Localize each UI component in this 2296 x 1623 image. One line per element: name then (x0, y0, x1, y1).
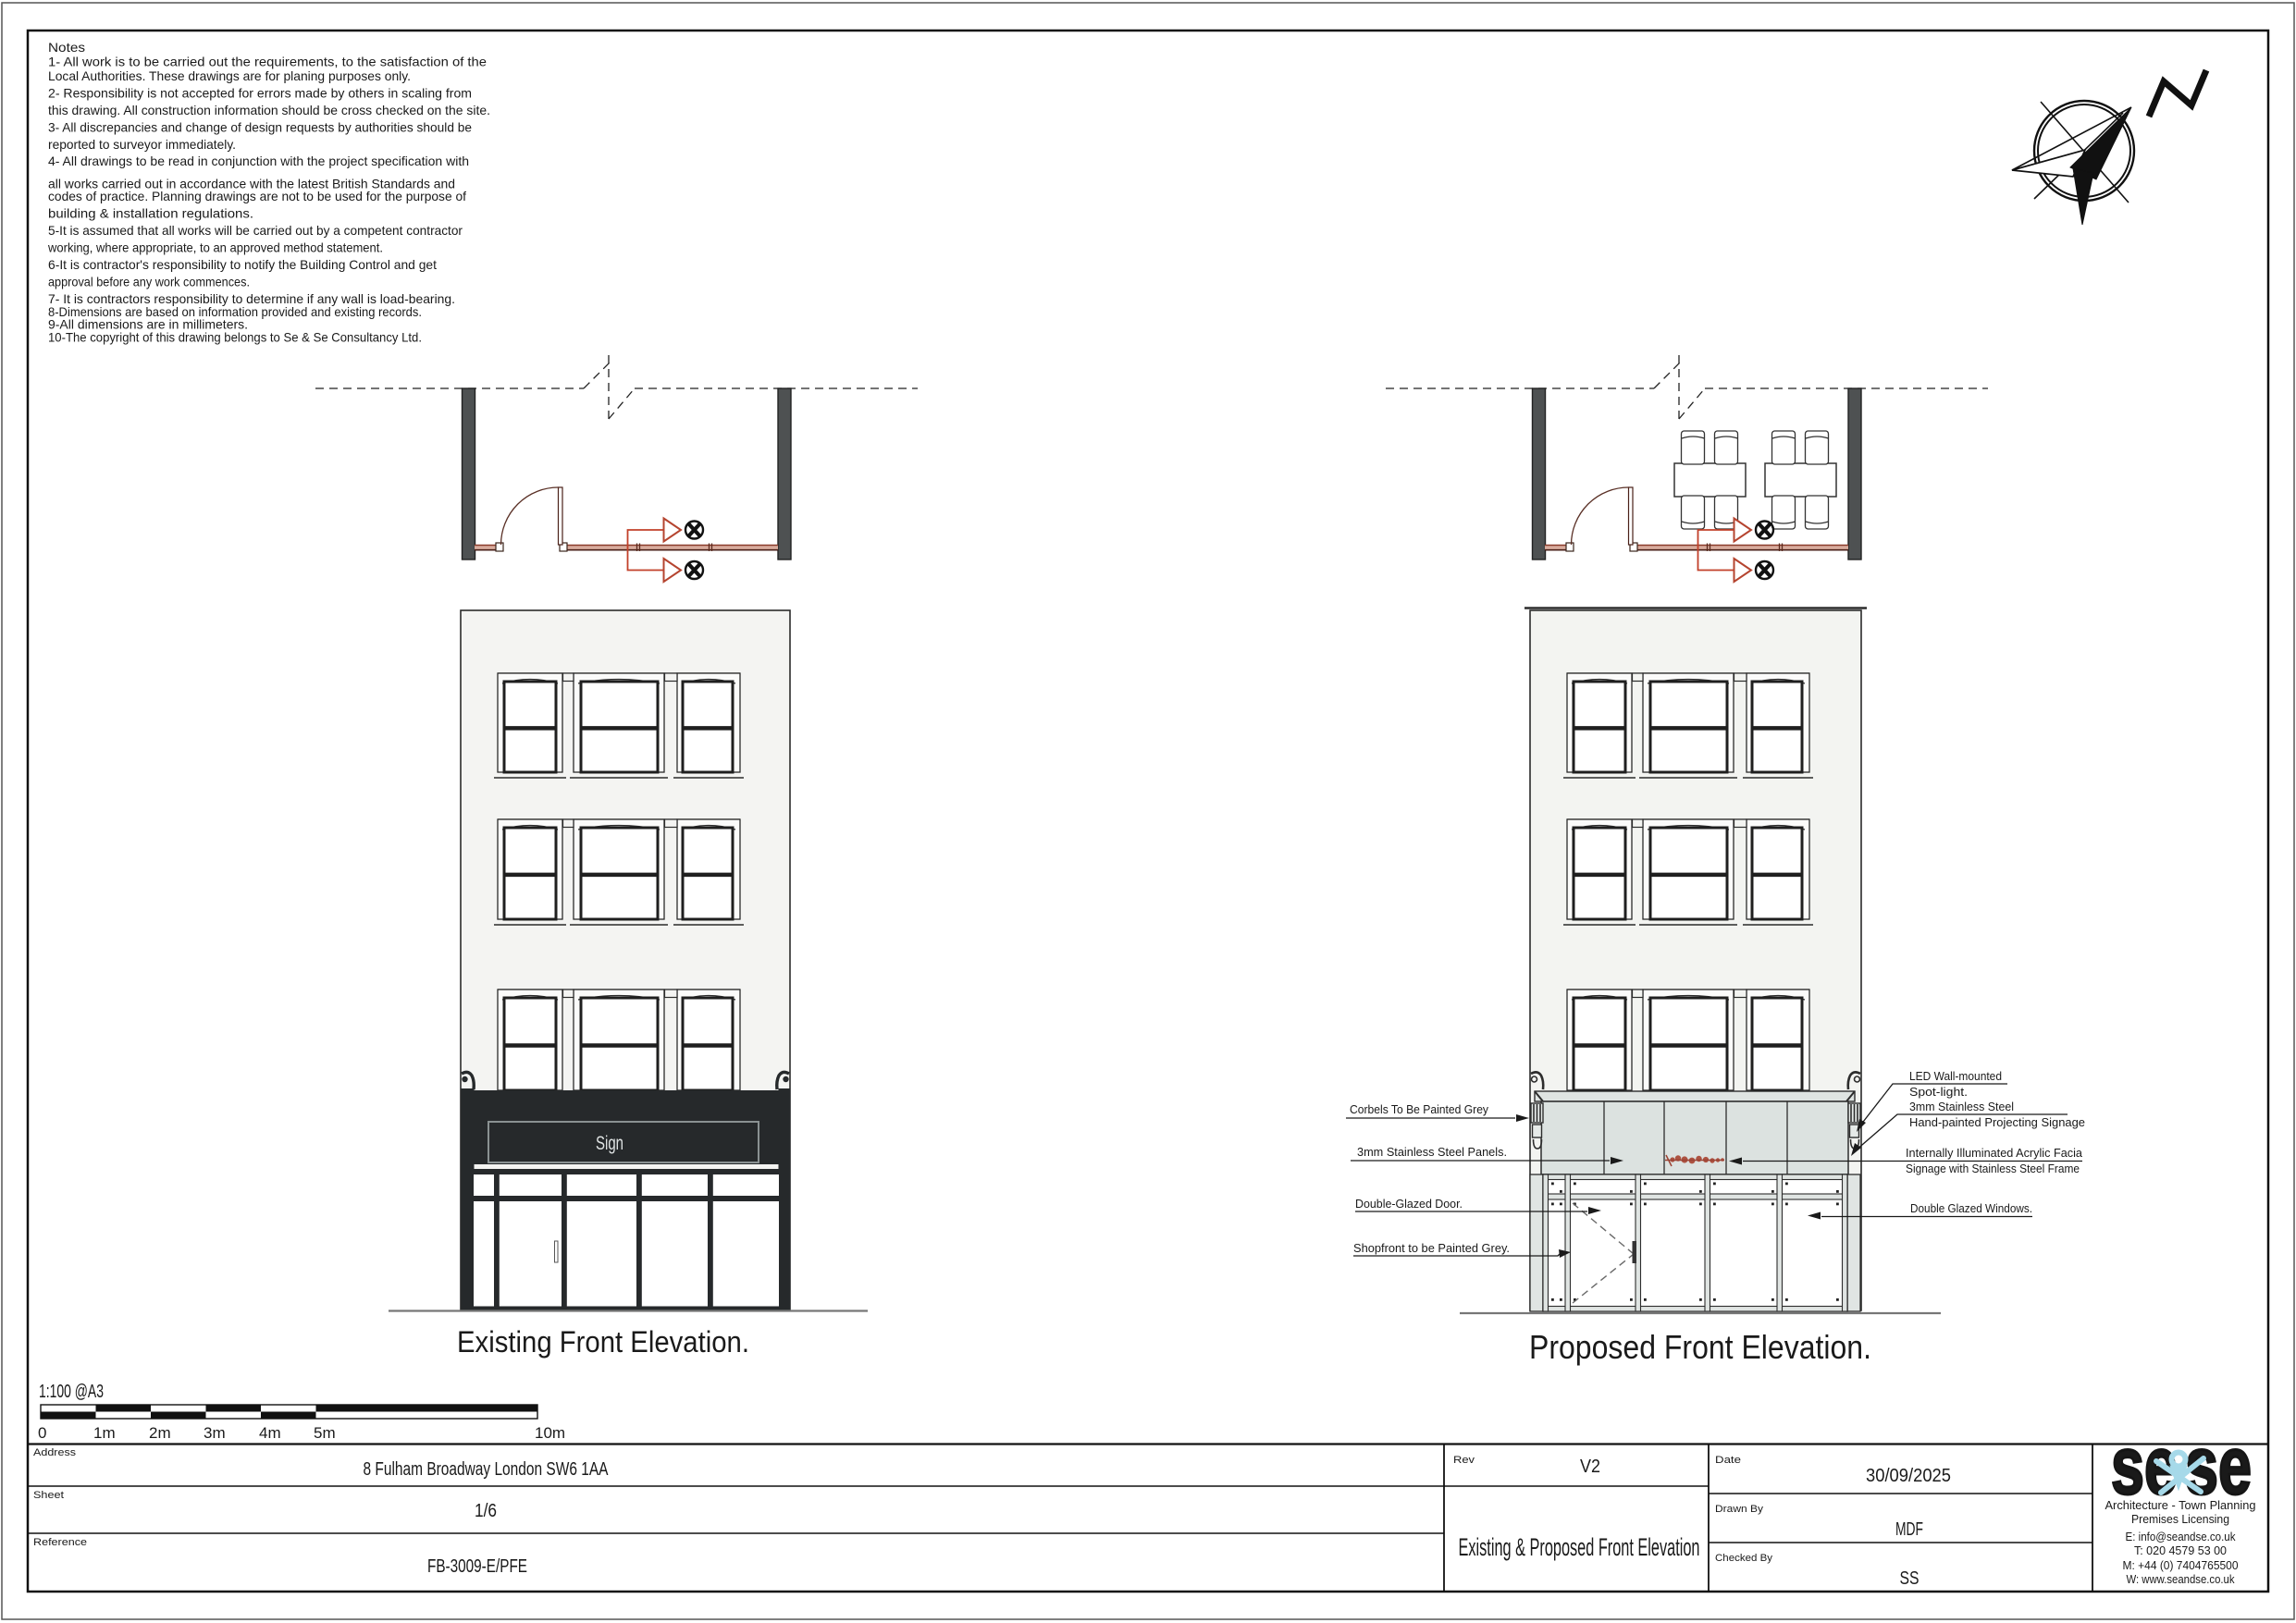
svg-text:Existing & Proposed Front Elev: Existing & Proposed Front Elevation (1459, 1533, 1700, 1561)
svg-text:T: 020 4579 53 00: T: 020 4579 53 00 (2134, 1543, 2227, 1557)
svg-text:this drawing. All construction: this drawing. All construction informati… (48, 104, 490, 117)
svg-text:Checked By: Checked By (1715, 1553, 1773, 1564)
svg-text:10-The copyright of this drawi: 10-The copyright of this drawing belongs… (48, 331, 422, 345)
svg-text:V2: V2 (1580, 1457, 1600, 1477)
svg-text:reported to surveyor immediate: reported to surveyor immediately. (48, 138, 236, 152)
svg-text:2m: 2m (149, 1424, 171, 1442)
svg-text:3- All discrepancies and chang: 3- All discrepancies and change of desig… (48, 120, 472, 134)
svg-text:4m: 4m (259, 1424, 281, 1442)
svg-text:approval before any work comme: approval before any work commences. (48, 276, 250, 289)
svg-text:SS: SS (1900, 1568, 1920, 1589)
svg-text:Spot-light.: Spot-light. (1909, 1086, 1968, 1099)
svg-text:Notes: Notes (48, 41, 85, 55)
svg-text:5-It is assumed that all works: 5-It is assumed that all works will be c… (48, 224, 463, 238)
svg-text:working, where appropriate, to: working, where appropriate, to an approv… (47, 241, 383, 255)
svg-text:Double Glazed Windows.: Double Glazed Windows. (1910, 1202, 2032, 1215)
svg-text:3mm Stainless Steel Panels.: 3mm Stainless Steel Panels. (1357, 1146, 1507, 1159)
svg-text:Local Authorities. These drawi: Local Authorities. These drawings are fo… (48, 69, 411, 83)
svg-text:4- All drawings to be read in: 4- All drawings to be read in conjunctio… (48, 154, 469, 168)
svg-text:LED Wall-mounted: LED Wall-mounted (1909, 1070, 2002, 1083)
svg-text:Proposed Front Elevation.: Proposed Front Elevation. (1529, 1328, 1871, 1366)
svg-text:Corbels To Be Painted Grey: Corbels To Be Painted Grey (1350, 1103, 1489, 1116)
svg-text:E: info@seandse.co.uk: E: info@seandse.co.uk (2126, 1530, 2236, 1543)
svg-text:0: 0 (38, 1424, 46, 1442)
svg-text:3mm Stainless Steel: 3mm Stainless Steel (1909, 1100, 2014, 1113)
svg-text:1- All work is to be carried o: 1- All work is to be carried out the req… (48, 55, 487, 69)
svg-text:9-All dimensions are in millim: 9-All dimensions are in millimeters. (48, 318, 248, 332)
svg-text:Rev: Rev (1453, 1455, 1475, 1466)
svg-text:Internally Illuminated Acrylic: Internally Illuminated Acrylic Facia (1906, 1147, 2082, 1160)
svg-text:Architecture - Town Planning: Architecture - Town Planning (2105, 1498, 2256, 1512)
svg-text:6-It is contractor's responsib: 6-It is contractor's responsibility to n… (48, 258, 437, 272)
svg-text:FB-3009-E/PFE: FB-3009-E/PFE (427, 1556, 527, 1577)
svg-text:1:100 @A3: 1:100 @A3 (39, 1382, 104, 1402)
svg-text:Premises Licensing: Premises Licensing (2131, 1512, 2229, 1526)
svg-text:codes of practice. Planning dr: codes of practice. Planning drawings are… (48, 190, 466, 203)
svg-text:M: +44 (0) 7404765500: M: +44 (0) 7404765500 (2123, 1558, 2239, 1572)
svg-text:Double-Glazed Door.: Double-Glazed Door. (1355, 1198, 1463, 1211)
svg-text:8-Dimensions are based on info: 8-Dimensions are based on information pr… (48, 305, 422, 319)
svg-text:Sheet: Sheet (33, 1490, 64, 1501)
svg-text:Shopfront to be Painted Grey.: Shopfront to be Painted Grey. (1353, 1242, 1510, 1255)
svg-text:W: www.seandse.co.uk: W: www.seandse.co.uk (2127, 1572, 2235, 1586)
svg-text:Drawn By: Drawn By (1715, 1504, 1764, 1515)
svg-text:Signage with Stainless Steel F: Signage with Stainless Steel Frame (1906, 1162, 2080, 1175)
svg-text:3m: 3m (204, 1424, 226, 1442)
svg-text:Existing Front Elevation.: Existing Front Elevation. (457, 1325, 749, 1359)
svg-text:5m: 5m (314, 1424, 336, 1442)
svg-text:Sign: Sign (596, 1133, 623, 1154)
svg-text:10m: 10m (535, 1424, 565, 1442)
svg-text:Hand-painted Projecting Signag: Hand-painted Projecting Signage (1909, 1116, 2085, 1129)
svg-text:Date: Date (1715, 1455, 1741, 1466)
svg-text:building & installation regula: building & installation regulations. (48, 207, 253, 221)
svg-text:MDF: MDF (1895, 1519, 1923, 1540)
svg-text:2- Responsibility is not accep: 2- Responsibility is not accepted for er… (48, 86, 472, 100)
svg-text:8 Fulham Broadway London SW6 1: 8 Fulham Broadway London SW6 1AA (364, 1459, 610, 1480)
svg-text:1/6: 1/6 (475, 1501, 497, 1521)
svg-text:1m: 1m (93, 1424, 116, 1442)
svg-text:30/09/2025: 30/09/2025 (1866, 1466, 1951, 1486)
svg-text:Reference: Reference (33, 1537, 87, 1548)
svg-text:Address: Address (33, 1447, 77, 1458)
